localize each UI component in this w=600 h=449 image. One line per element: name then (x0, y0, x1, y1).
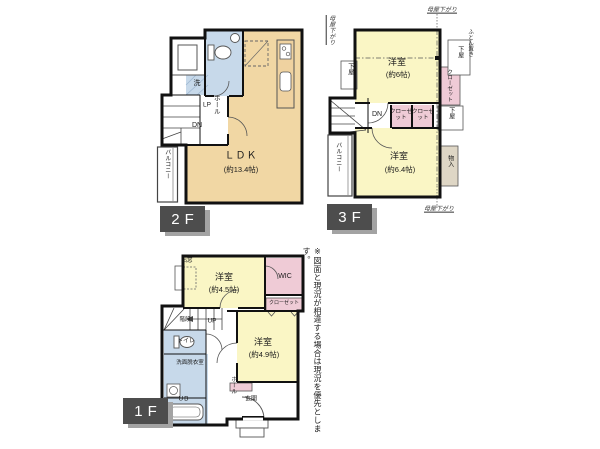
room-size-3f-2: (約6.4帖) (385, 166, 415, 174)
room-label-3f-1: 洋室 (388, 57, 406, 67)
up-arrow (186, 316, 222, 322)
floorplan-2f-graphic (156, 14, 306, 210)
stairs-down-label-2f: DN (192, 122, 202, 130)
disclaimer-note: ※図面と現況が相違する場合は現況を優先とします。 (301, 247, 323, 443)
closet-label-side: クローゼット (446, 69, 452, 102)
stairs-down-label-3f: DN (372, 111, 382, 119)
floorplan-canvas: ＬＤＫ (約13.4帖) LP ホール DN 洗 バルコニー 洋室 (約6帖) … (0, 0, 600, 449)
toilet-label: トイレ (177, 339, 195, 346)
bay-window-label: 出窓 (181, 258, 192, 264)
utility-area (171, 38, 205, 75)
washroom-label: 洗面脱衣室 (176, 360, 204, 366)
moya-sagari-label-top: 母屋下がり (427, 8, 457, 15)
door-arc (206, 334, 222, 350)
stairs-label-1f: 階段 (179, 317, 190, 323)
room-label-3f-2: 洋室 (390, 151, 408, 161)
geya-label-left: 下屋 (346, 63, 353, 75)
balcony-label-2f: バルコニー (163, 149, 170, 179)
wic-label: WIC (278, 273, 292, 281)
hall-label-1f: ホール (229, 376, 236, 394)
lp-gas-label: LP (203, 101, 211, 108)
kitchen-counter-icon (277, 40, 294, 108)
closet-label-1: クローゼット (390, 109, 412, 121)
closet-label-2: クローゼット (412, 109, 434, 121)
entrance-label: 玄関 (245, 397, 257, 404)
room-size-1f-2: (約4.9帖) (249, 351, 279, 359)
room-label-1f-1: 洋室 (215, 272, 233, 282)
room-label-1f-2: 洋室 (254, 337, 272, 347)
storage-label: 物入 (446, 155, 453, 167)
unit-bath-label: UB (178, 395, 189, 402)
futon-storage-label: ふとん置き (467, 29, 473, 57)
balcony-label-3f: バルコニー (334, 142, 341, 172)
moya-sagari-label-left: 母屋下がり (327, 15, 334, 45)
hall-label-2f: ホール (212, 95, 219, 115)
closet-label-1f: クローゼット (269, 301, 299, 307)
toilet-icon (208, 45, 231, 60)
geya-label-mid-right: 下屋 (447, 107, 454, 119)
floor-tag-3f: 3F (327, 204, 372, 230)
room-size-ldk: (約13.4帖) (224, 166, 259, 174)
floor-tag-1f: 1F (123, 398, 168, 424)
laundry-label: 洗 (194, 80, 201, 88)
washbasin-icon (231, 34, 240, 43)
room-size-1f-1: (約4.5帖) (209, 286, 239, 294)
moya-sagari-label-bottom: 母屋下がり (424, 207, 454, 214)
bathtub-icon (167, 404, 203, 420)
room-size-3f-1: (約6帖) (386, 71, 410, 79)
stairs-up-label: UP (207, 317, 216, 324)
floor-tag-2f: 2F (160, 206, 205, 232)
room-label-ldk: ＬＤＫ (225, 150, 258, 161)
door-arc (217, 343, 237, 363)
geya-label-top-right: 下屋 (456, 46, 463, 58)
